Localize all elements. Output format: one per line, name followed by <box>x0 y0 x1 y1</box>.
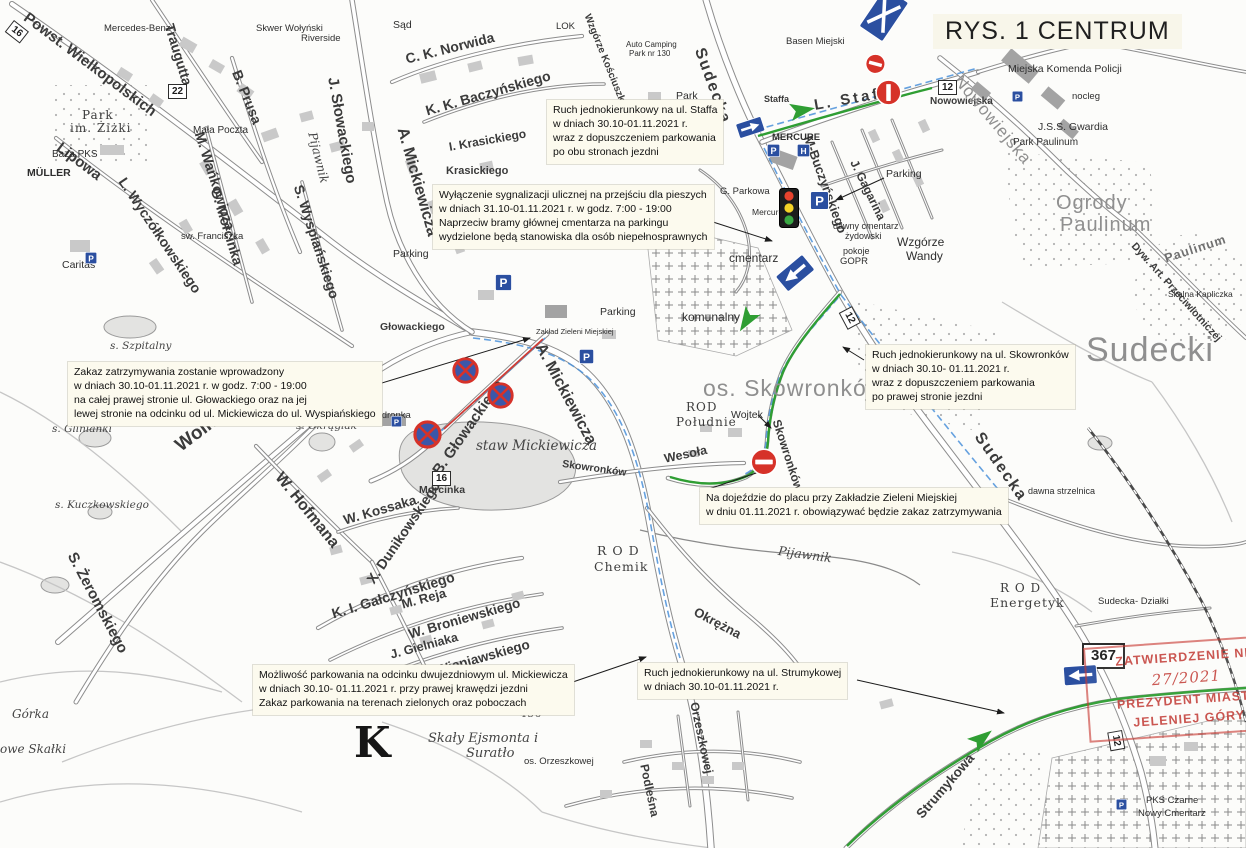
figure-title: RYS. 1 CENTRUM <box>933 14 1182 49</box>
buildings <box>70 37 1198 798</box>
approval-stamp: ZATWIERDZENIE NR27/2021PREZYDENT MIASTAJ… <box>1083 634 1246 743</box>
base-map <box>0 0 1246 848</box>
forest-areas <box>55 85 1246 848</box>
route-staffa <box>758 88 932 136</box>
map-canvas: Powst. WielkopolskichLipowaTrauguttaB. P… <box>0 0 1246 848</box>
pijawnik-stream <box>640 530 920 585</box>
no-stopping-red-line <box>444 339 543 429</box>
park-paths <box>0 302 1232 848</box>
